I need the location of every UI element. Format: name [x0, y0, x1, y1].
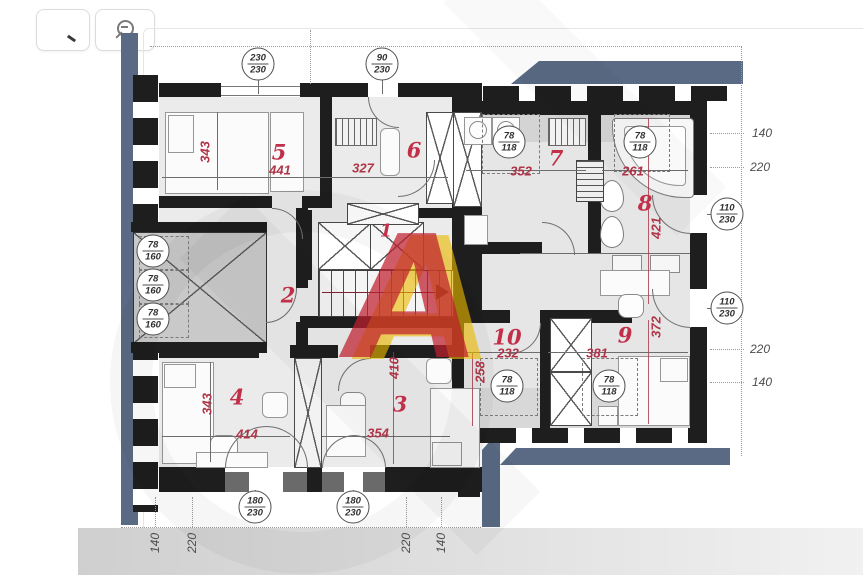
- dim-room3-depth: 410: [387, 357, 402, 379]
- wall: [302, 196, 332, 208]
- window: [221, 86, 300, 96]
- wall: [460, 101, 707, 115]
- room-label-6: 6: [407, 138, 422, 163]
- wall: [320, 97, 332, 196]
- shower: [576, 160, 604, 202]
- dim-room9-depth: 372: [649, 316, 664, 338]
- opening-label-110-230: 110230: [711, 292, 744, 325]
- room-label-5: 5: [272, 140, 287, 165]
- opening-label-110-230: 110230: [711, 198, 744, 231]
- dim-room5-depth: 343: [198, 141, 213, 163]
- wall: [131, 222, 267, 232]
- door-threshold: [363, 472, 385, 492]
- edge-dim-right-140: 140: [752, 375, 772, 389]
- radiator: [335, 118, 377, 146]
- edge-dim-right-220: 220: [750, 160, 770, 174]
- furniture-pillow: [164, 364, 196, 388]
- opening-label-180-230: 180230: [337, 491, 370, 524]
- edge-dim-right-220: 220: [750, 342, 770, 356]
- room-label-2: 2: [281, 283, 296, 308]
- furniture-chair: [618, 294, 644, 318]
- dimension-line: [162, 177, 448, 178]
- room-label-7: 7: [549, 146, 564, 171]
- door-threshold: [322, 472, 344, 492]
- zoom-in-icon: [67, 35, 76, 43]
- opening-label-78-118: 78118: [491, 370, 524, 403]
- dim-room10-width: 232: [497, 346, 519, 361]
- leader-line: [382, 80, 383, 94]
- door-threshold: [283, 472, 307, 492]
- wall: [159, 467, 225, 492]
- wall: [385, 467, 482, 492]
- dim-room4-depth: 343: [200, 393, 215, 415]
- guide-line: [741, 46, 742, 456]
- wall: [300, 210, 312, 280]
- dim-room10-depth: 258: [473, 361, 488, 383]
- door-threshold: [225, 472, 249, 492]
- opening-label-78-118: 78118: [624, 126, 657, 159]
- guide-line: [710, 382, 744, 383]
- roof-band-bottom-right: [500, 448, 730, 465]
- wall: [159, 83, 221, 97]
- edge-dim-bottom-140: 140: [434, 533, 448, 553]
- edge-dim-bottom-220: 220: [185, 533, 199, 553]
- wall: [290, 345, 338, 358]
- opening-label-78-160: 78160: [137, 303, 170, 336]
- opening-label-78-118: 78118: [493, 126, 526, 159]
- dim-room9-width: 381: [586, 346, 608, 361]
- dim-room4-width: 414: [236, 427, 258, 442]
- wall: [690, 327, 707, 428]
- exterior-wall-top-right: [483, 86, 743, 101]
- watermark-logo-a: A: [335, 214, 484, 384]
- guide-line: [710, 133, 744, 134]
- room-label-9: 9: [618, 323, 633, 348]
- dim-room8-depth: 421: [649, 217, 664, 239]
- dimension-line: [548, 352, 688, 353]
- opening-label-78-118: 78118: [593, 370, 626, 403]
- dimension-line: [217, 112, 218, 190]
- floor-plan-viewer: A 1 2 3 4 5 6 7 8 9 10 441 343 327 352 2…: [0, 0, 863, 575]
- guide-line: [710, 167, 744, 168]
- edge-dim-right-140: 140: [752, 126, 772, 140]
- wall: [159, 196, 272, 208]
- bidet: [600, 216, 624, 248]
- room-label-3: 3: [393, 392, 408, 417]
- opening-label-78-160: 78160: [137, 269, 170, 302]
- room-label-4: 4: [230, 385, 245, 410]
- wall: [300, 83, 368, 97]
- furniture-stool: [262, 392, 288, 418]
- edge-dim-bottom-220: 220: [399, 533, 413, 553]
- wall: [307, 467, 322, 492]
- furniture-pillow: [168, 115, 194, 153]
- guide-line: [710, 349, 744, 350]
- radiator: [548, 118, 586, 146]
- furniture-pillow: [660, 358, 688, 382]
- furniture-table: [380, 128, 400, 176]
- dimension-line: [602, 170, 688, 171]
- room-label-1: 1: [380, 221, 393, 242]
- dim-room8-width: 261: [622, 164, 644, 179]
- wall: [131, 342, 267, 353]
- edge-dim-bottom-140: 140: [148, 533, 162, 553]
- dim-room3-width: 354: [367, 426, 389, 441]
- dimension-line: [162, 436, 290, 437]
- dim-room5-width: 441: [269, 163, 291, 178]
- guide-line: [150, 46, 742, 47]
- opening-label-90-230: 90230: [366, 48, 399, 81]
- dim-room7-width: 352: [510, 164, 532, 179]
- room-label-8: 8: [638, 191, 653, 216]
- leader-line: [258, 80, 259, 94]
- zoom-in-button[interactable]: [36, 9, 90, 51]
- exterior-wall-bottom-right: [480, 428, 707, 443]
- wall: [690, 233, 707, 289]
- furniture-cabinet: [426, 112, 454, 204]
- wall: [540, 323, 550, 428]
- opening-label-230-230: 230230: [242, 48, 275, 81]
- guide-line: [310, 30, 311, 84]
- furniture-pillow: [432, 442, 462, 466]
- dim-room6-width: 327: [352, 161, 374, 176]
- opening-label-180-230: 180230: [239, 491, 272, 524]
- opening-label-78-160: 78160: [137, 235, 170, 268]
